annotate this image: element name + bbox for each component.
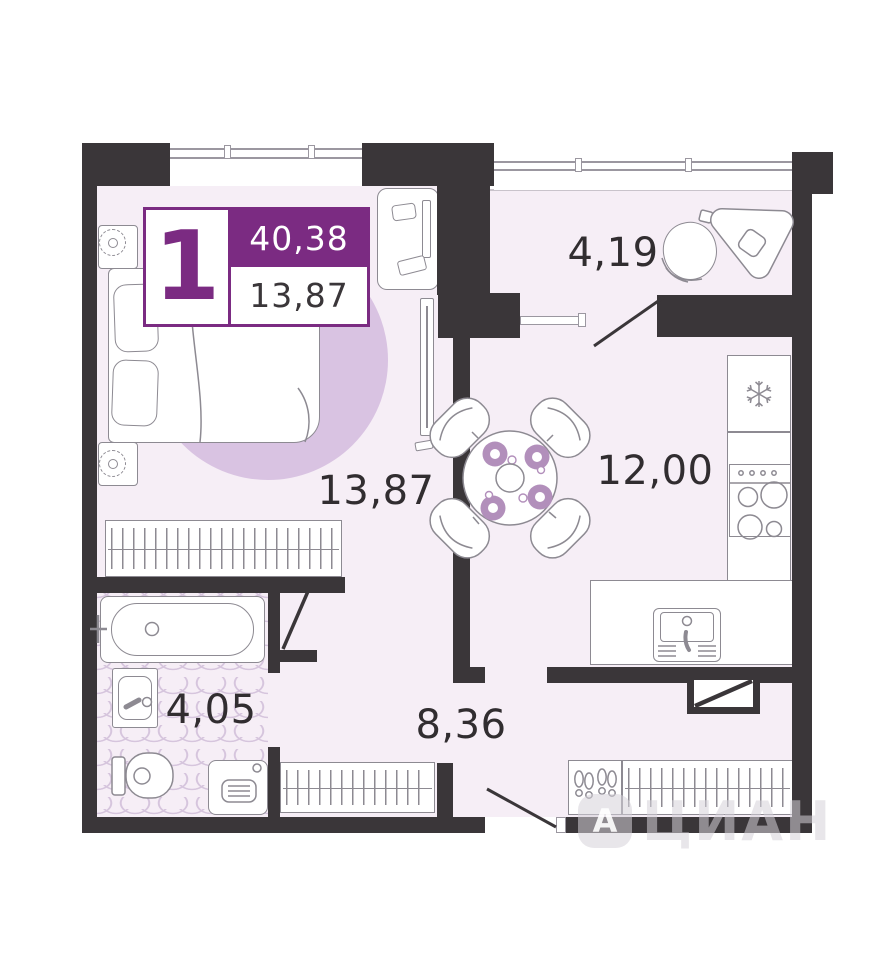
living-room-area-label: 13,87 bbox=[311, 468, 441, 514]
wall-entry-partition bbox=[437, 763, 453, 817]
wall-bathroom-right-upper bbox=[268, 577, 280, 673]
tv-screen-line bbox=[426, 306, 428, 428]
watermark-brand: ЦИАН bbox=[642, 790, 832, 853]
wall-left bbox=[82, 143, 97, 833]
entrance-door-jamb bbox=[556, 817, 566, 833]
wall-bottom-left bbox=[82, 817, 485, 833]
vent-shaft-inner bbox=[694, 680, 753, 707]
wall-top-middle-pier bbox=[362, 143, 494, 186]
rooms-count: 1 bbox=[146, 210, 228, 324]
stove bbox=[729, 464, 791, 537]
kitchen-balcony-window-sill bbox=[520, 316, 583, 325]
wall-bathroom-door-bar bbox=[280, 650, 317, 662]
wall-balcony-pier bbox=[438, 293, 520, 338]
living-room-doorway-floor bbox=[345, 577, 453, 593]
kitchen-area-label: 12,00 bbox=[590, 448, 720, 494]
fridge bbox=[727, 355, 791, 432]
kitchen-sink-basin bbox=[660, 612, 714, 642]
total-area: 40,38 bbox=[231, 210, 367, 267]
wall-balcony-kitchen bbox=[657, 295, 793, 337]
apartment-info-badge: 1 40,38 13,87 bbox=[143, 207, 370, 327]
lamp-bottom-inner bbox=[108, 459, 118, 469]
hallway-area-label: 8,36 bbox=[396, 702, 526, 748]
balcony-window bbox=[494, 143, 792, 190]
hallway-kitchen-passage-floor bbox=[485, 667, 547, 683]
cian-logo-icon: А bbox=[578, 794, 632, 848]
living-room-window-line-1 bbox=[170, 148, 362, 150]
kitchen-balcony-window-end bbox=[578, 313, 586, 327]
balcony-window-mullion-2 bbox=[685, 158, 692, 172]
pillow-2 bbox=[111, 359, 159, 427]
living-area: 13,87 bbox=[231, 267, 367, 324]
living-room-window-line-2 bbox=[170, 157, 362, 159]
wall-top-left-pier bbox=[82, 143, 170, 186]
balcony-area-label: 4,19 bbox=[548, 230, 678, 276]
wardrobe-bedroom bbox=[105, 520, 342, 577]
balcony-window-line-1 bbox=[494, 161, 792, 163]
wall-bedroom-kitchen bbox=[453, 338, 470, 667]
desk-monitor bbox=[422, 200, 431, 258]
desk-chair bbox=[391, 202, 417, 221]
wall-bedroom-kitchen-foot bbox=[453, 667, 485, 683]
balcony-window-mullion-1 bbox=[575, 158, 582, 172]
wall-bedroom-bathroom bbox=[97, 577, 345, 593]
washing-machine bbox=[208, 760, 268, 815]
wall-bedroom-balcony bbox=[437, 186, 490, 295]
wardrobe-hallway-left bbox=[280, 762, 435, 813]
bathroom-area-label: 4,05 bbox=[146, 687, 276, 733]
wall-right bbox=[792, 160, 812, 833]
floor-plan: 13,87 4,19 12,00 4,05 8,36 1 40,38 13,87… bbox=[0, 0, 891, 960]
wardrobe-bedroom-rail bbox=[108, 549, 339, 550]
wardrobe-hallway-left-rail bbox=[283, 788, 432, 789]
balcony-window-line-2 bbox=[494, 169, 792, 171]
wall-bathroom-right-lower bbox=[268, 747, 280, 817]
living-room-window-mullion-1 bbox=[224, 145, 231, 159]
bathtub-inner bbox=[111, 603, 254, 656]
living-room-window-mullion-2 bbox=[308, 145, 315, 159]
watermark: А ЦИАН bbox=[578, 792, 832, 850]
lamp-top-inner bbox=[108, 238, 118, 248]
hallway-floor-stub bbox=[280, 593, 453, 683]
